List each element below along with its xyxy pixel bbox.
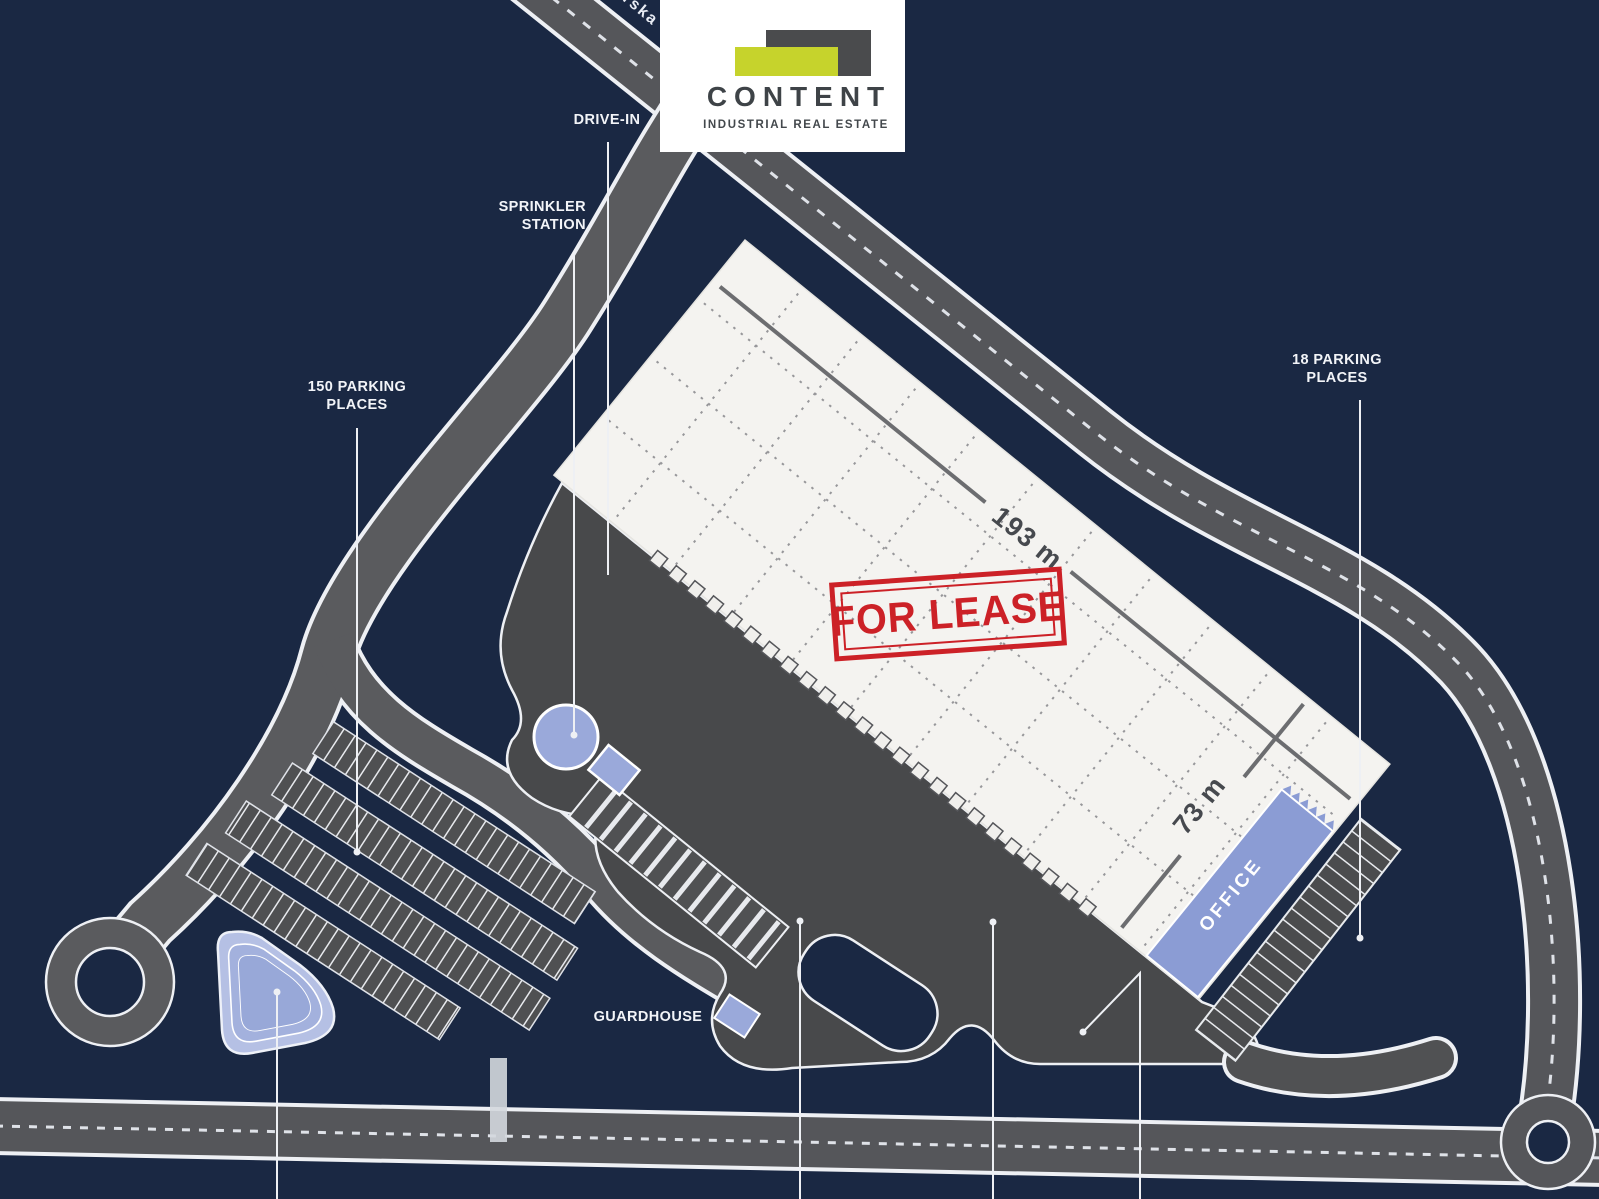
label-guardhouse: GUARDHOUSE	[594, 1009, 703, 1025]
label-sprinkler-line2: STATION	[522, 217, 586, 233]
label-parking150-line2: PLACES	[326, 397, 387, 413]
logo-brand-text: CONTENT	[707, 81, 891, 112]
rear-drive	[1244, 1058, 1436, 1076]
site-plan-svg: 193 m 73 m OFFICE	[0, 0, 1599, 1199]
site-plan: 193 m 73 m OFFICE	[0, 0, 1599, 1199]
logo-mark-lime	[735, 47, 838, 76]
logo: CONTENT INDUSTRIAL REAL ESTATE	[660, 0, 905, 152]
label-sprinkler-line1: SPRINKLER	[499, 199, 587, 215]
footpath-stub	[490, 1058, 507, 1142]
label-parking18-line1: 18 PARKING	[1292, 352, 1382, 368]
label-parking150-line1: 150 PARKING	[308, 379, 406, 395]
sprinkler-tank	[534, 705, 598, 769]
turning-circle	[46, 918, 174, 1046]
label-drive-in: DRIVE-IN	[574, 112, 641, 128]
label-parking18-line2: PLACES	[1306, 370, 1367, 386]
roundabout	[1501, 1095, 1595, 1189]
logo-tagline-text: INDUSTRIAL REAL ESTATE	[703, 119, 889, 131]
